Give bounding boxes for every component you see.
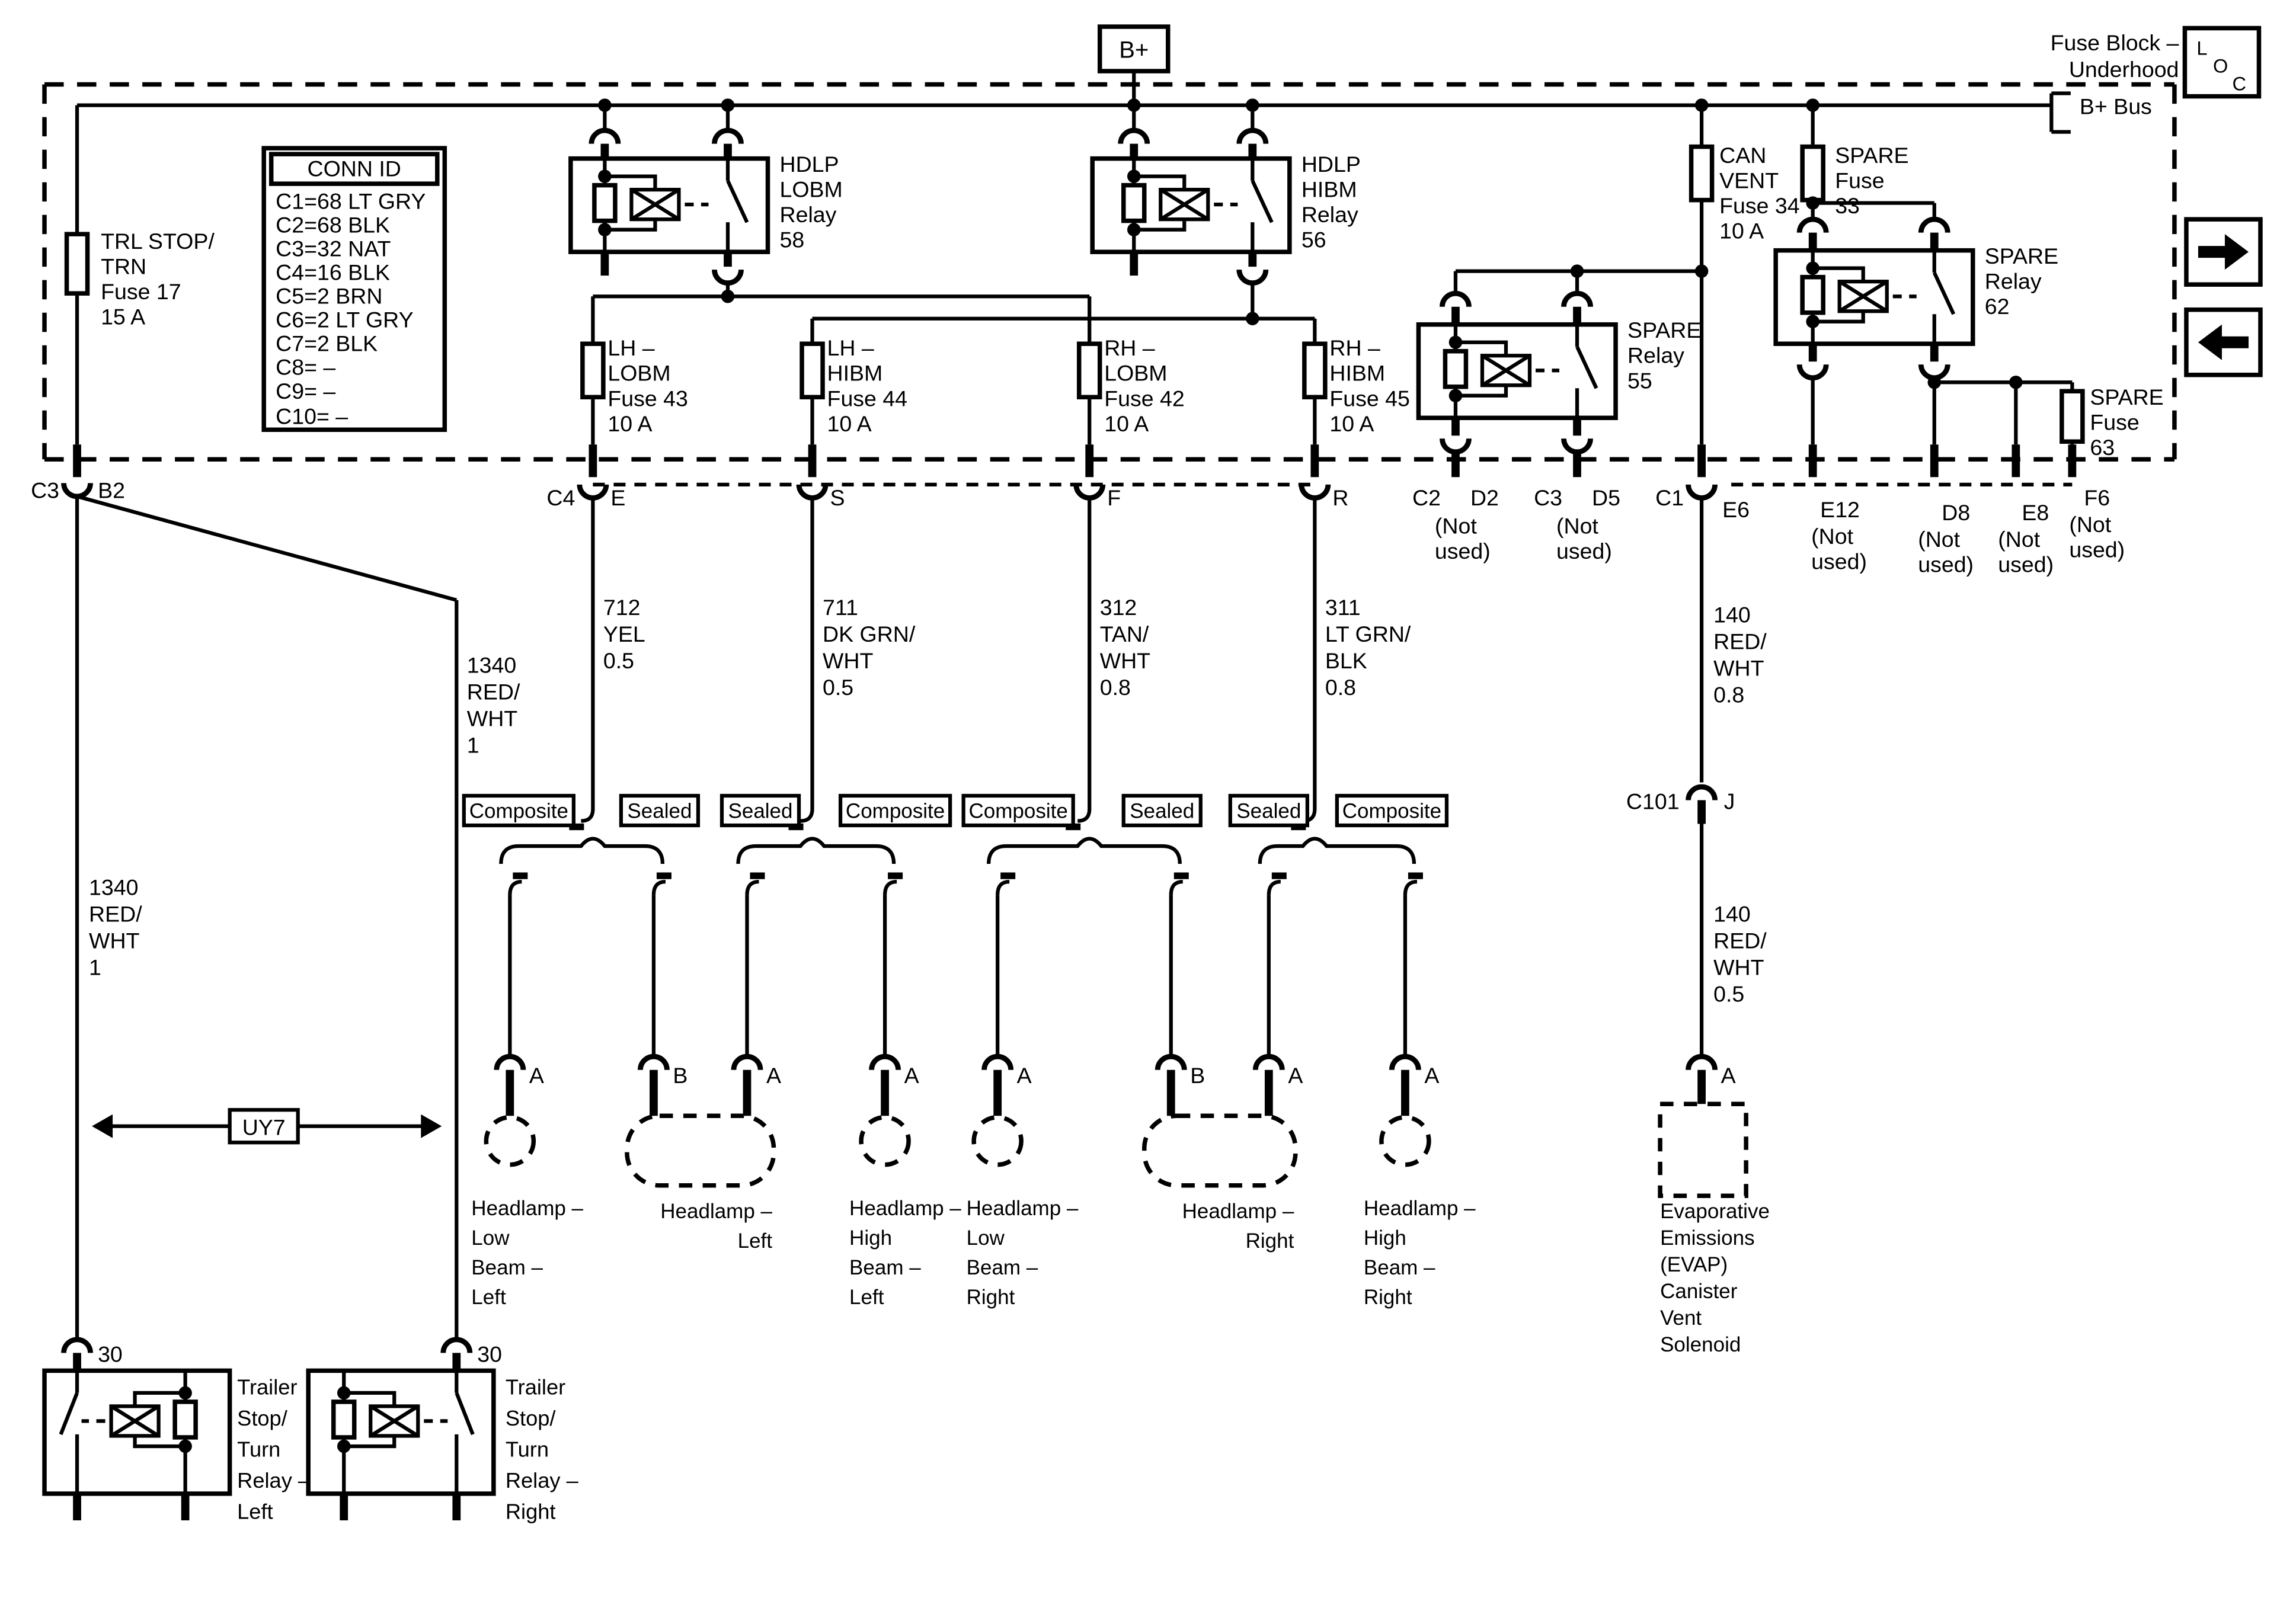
fuse33-label: Fuse	[1835, 168, 1884, 193]
wire-140b-label: 0.5	[1713, 982, 1744, 1007]
terminal-c1: C1	[1655, 485, 1684, 510]
relay56-label: HDLP	[1302, 152, 1361, 177]
wire-1340-left-label: 1340	[89, 875, 138, 900]
fuse63-label: Fuse	[2090, 409, 2139, 434]
fuse44-label: LH –	[827, 335, 874, 360]
splice-sealed: Sealed	[1236, 800, 1301, 823]
trailer-relay-left: 30 Trailer Stop/ Turn Relay – Left	[44, 1340, 311, 1524]
fuse17-label: TRN	[101, 254, 146, 279]
fuse45-label: 10 A	[1329, 411, 1374, 436]
wire-1340-right-label: 1340	[467, 652, 516, 677]
conn-id-row: C7=2 BLK	[276, 331, 378, 356]
evap-label: Vent	[1660, 1306, 1702, 1330]
terminal-a: A	[1288, 1063, 1303, 1088]
loc-letter: O	[2213, 56, 2228, 77]
lamp-left-label: Headlamp –	[660, 1200, 772, 1223]
not-used: (Not	[1918, 527, 1960, 552]
fuse34-label: Fuse 34	[1719, 193, 1799, 218]
fuse44-label: Fuse 44	[827, 386, 908, 411]
trl-stop-trn-fuse: TRL STOP/ TRN Fuse 17 15 A C3 B2	[31, 105, 215, 503]
wire-711-label: 711	[823, 595, 858, 620]
fuse33-label: SPARE	[1835, 143, 1908, 168]
fuse43-label: 10 A	[607, 411, 652, 436]
relay62-label: 62	[1985, 294, 2010, 319]
wiring-diagram-canvas: Fuse Block – Underhood L O C B+ B+ Bus C…	[0, 0, 2296, 1611]
terminal-b: B	[673, 1063, 687, 1088]
terminal-a: A	[904, 1063, 919, 1088]
terminal-c3: C3	[31, 478, 59, 502]
lamp-low-right-label: Low	[967, 1226, 1005, 1250]
fuse34-label: VENT	[1719, 168, 1779, 193]
terminal-c2: C2	[1412, 485, 1441, 510]
conn-id-row: C3=32 NAT	[276, 236, 391, 261]
headlamp-fuses: LH – LOBM Fuse 43 10 A LH – HIBM Fuse 44…	[583, 290, 1410, 444]
fuse17-label: TRL STOP/	[101, 229, 215, 254]
fuse-block-label: Underhood	[2069, 57, 2179, 82]
wire-711-label: WHT	[823, 648, 873, 673]
lamp-high-right-label: Right	[1364, 1286, 1412, 1309]
wire-311-label: BLK	[1325, 648, 1367, 673]
arrow-right-icon	[2198, 234, 2249, 270]
terminal-e12: E12	[1820, 497, 1860, 522]
relay55-label: SPARE	[1627, 318, 1701, 342]
title-block: Fuse Block – Underhood L O C	[2051, 28, 2260, 375]
fuse43-label: LOBM	[607, 361, 670, 386]
hdlp-lobm-relay-58: HDLP LOBM Relay 58	[571, 105, 843, 297]
trailer-left-label: Turn	[237, 1437, 280, 1461]
not-used: used)	[1811, 549, 1867, 574]
fuse42-label: Fuse 42	[1104, 386, 1185, 411]
conn-id-row: C8= –	[276, 355, 335, 380]
relay62-label: SPARE	[1985, 244, 2058, 268]
splice-composite: Composite	[469, 800, 568, 823]
lamp-low-beam-left	[486, 1117, 533, 1165]
terminal-b2: B2	[98, 478, 125, 502]
wire-311-label: 311	[1325, 595, 1361, 620]
lamp-right-label: Headlamp –	[1182, 1200, 1294, 1223]
wire-1340-left-label: 1	[89, 955, 101, 980]
terminal-a: A	[1424, 1063, 1439, 1088]
lamp-high-left-label: Beam –	[849, 1256, 921, 1279]
terminal-c3b: C3	[1534, 485, 1562, 510]
splice-sealed: Sealed	[1130, 800, 1194, 823]
not-used: (Not	[1998, 527, 2040, 552]
wire-1340-left-label: WHT	[89, 928, 139, 953]
fuse42-label: RH –	[1104, 335, 1155, 360]
fuse-block-label: Fuse Block –	[2051, 30, 2179, 55]
terminal-s: S	[830, 485, 845, 510]
terminal-d8: D8	[1942, 500, 1970, 525]
headlamps: A B A A A B A A Headlamp – Low Beam – Le…	[471, 1056, 1476, 1309]
connector-arc	[64, 483, 91, 497]
not-used: used)	[2069, 537, 2125, 562]
bplus-bus: B+ B+ Bus	[77, 27, 2152, 132]
arrow-left-icon	[2198, 325, 2249, 360]
conn-id-row: C1=68 LT GRY	[276, 189, 426, 214]
terminal-a: A	[1017, 1063, 1032, 1088]
evap-label: Emissions	[1660, 1226, 1754, 1250]
loc-letter: C	[2232, 73, 2246, 95]
wire-140a-label: WHT	[1713, 655, 1764, 680]
bplus-label: B+	[1119, 37, 1149, 63]
wire-312-label: 0.8	[1100, 675, 1131, 700]
lamp-left	[627, 1116, 774, 1186]
terminal-30: 30	[477, 1341, 502, 1366]
spare-relay-55: SPARE Relay 55 C2 D2 (Not used) C3 D5 (N…	[1412, 264, 1708, 563]
wire-1340-right-label: RED/	[467, 679, 520, 704]
terminal-f6: F6	[2084, 485, 2110, 510]
conn-id-row: C5=2 BRN	[276, 284, 382, 309]
terminal-e: E	[610, 485, 625, 510]
lamp-high-beam-right	[1382, 1117, 1429, 1165]
trailer-left-label: Relay –	[237, 1468, 311, 1493]
evap-label: (EVAP)	[1660, 1253, 1728, 1276]
trailer-right-label: Right	[506, 1499, 556, 1523]
fuse34-label: 10 A	[1719, 219, 1764, 244]
wire-140b-label: 140	[1713, 902, 1751, 927]
conn-id-table: CONN ID C1=68 LT GRY C2=68 BLK C3=32 NAT…	[264, 148, 445, 430]
wire-1340-right-label: 1	[467, 732, 479, 757]
terminal-e8: E8	[2022, 500, 2049, 525]
terminal-a: A	[529, 1063, 544, 1088]
trailer-left-label: Left	[237, 1499, 273, 1523]
lamp-left-label: Left	[738, 1229, 773, 1253]
fuse43-label: LH –	[607, 335, 654, 360]
relay55-label: 55	[1627, 368, 1652, 393]
lamp-high-right-label: High	[1364, 1226, 1406, 1250]
evap-label: Solenoid	[1660, 1333, 1741, 1356]
splice-composite: Composite	[846, 800, 945, 823]
evap-label: Canister	[1660, 1280, 1738, 1303]
terminal-a: A	[766, 1063, 781, 1088]
wire-312-label: WHT	[1100, 648, 1150, 673]
wire-311-label: LT GRN/	[1325, 622, 1411, 646]
bplus-bus-label: B+ Bus	[2080, 94, 2152, 119]
splice-sealed: Sealed	[627, 800, 692, 823]
wire-312-label: TAN/	[1100, 622, 1149, 646]
fuse33-label: 33	[1835, 193, 1860, 218]
conn-id-row: C9= –	[276, 379, 335, 403]
headlamp-feed-wires: 712 YEL 0.5 711 DK GRN/ WHT 0.5 312 TAN/…	[593, 498, 1411, 794]
not-used: (Not	[1556, 513, 1598, 538]
splice-sealed: Sealed	[728, 800, 793, 823]
wire-311-label: 0.8	[1325, 675, 1356, 700]
wire-140a-label: 0.8	[1713, 682, 1744, 707]
splice-row: Composite Sealed Sealed Composite Compos…	[464, 795, 1447, 1057]
lamp-high-right-label: Headlamp –	[1364, 1197, 1476, 1220]
wire-1340-left-label: RED/	[89, 902, 142, 927]
terminal-d2: D2	[1470, 485, 1499, 510]
wire-712-label: 712	[603, 595, 641, 620]
not-used: used)	[1998, 552, 2054, 576]
trailer-right-label: Stop/	[506, 1406, 557, 1430]
wire-140a-label: 140	[1713, 602, 1751, 627]
lamp-low-left-label: Left	[471, 1286, 506, 1309]
uy7-arrow-left-icon	[92, 1114, 113, 1138]
splice-composite: Composite	[1342, 800, 1441, 823]
uy7-option-label: UY7	[242, 1115, 286, 1140]
wire-712-label: 0.5	[603, 648, 634, 673]
lamp-low-left-label: Beam –	[471, 1256, 543, 1279]
conn-id-header: CONN ID	[308, 156, 401, 181]
fuse63-label: 63	[2090, 435, 2115, 460]
trailer-right-label: Relay –	[506, 1468, 579, 1493]
fuse44-label: 10 A	[827, 411, 872, 436]
terminal-d5: D5	[1592, 485, 1620, 510]
not-used: used)	[1435, 539, 1491, 563]
uy7-arrow-right-icon	[421, 1114, 442, 1138]
not-used: used)	[1918, 552, 1974, 576]
wire-711-label: 0.5	[823, 675, 853, 700]
lamp-high-right-label: Beam –	[1364, 1256, 1435, 1279]
wire-712-label: YEL	[603, 622, 645, 646]
relay56-label: 56	[1302, 228, 1326, 252]
terminal-c4: C4	[546, 485, 575, 510]
lamp-low-right-label: Right	[967, 1286, 1015, 1309]
conn-id-row: C2=68 BLK	[276, 213, 390, 238]
relay58-label: HDLP	[780, 152, 839, 177]
conn-id-row: C6=2 LT GRY	[276, 308, 413, 332]
relay56-label: HIBM	[1302, 177, 1357, 202]
fuse42-label: 10 A	[1104, 411, 1149, 436]
lamp-right-label: Right	[1246, 1229, 1294, 1253]
not-used: used)	[1556, 539, 1612, 563]
lamp-high-left-label: Left	[849, 1286, 884, 1309]
splice-composite: Composite	[969, 800, 1068, 823]
trailer-right-label: Trailer	[506, 1375, 565, 1399]
fuse45-label: Fuse 45	[1329, 386, 1410, 411]
trailer-feed: 1340 RED/ WHT 1 1340 RED/ WHT 1 UY7	[77, 497, 520, 1338]
fuse63-label: SPARE	[2090, 385, 2163, 409]
evap-solenoid-box	[1660, 1104, 1746, 1196]
trailer-relay-right: 30 Trailer Stop/ Turn Relay – Right	[308, 1340, 578, 1524]
fuse45-label: HIBM	[1329, 361, 1385, 386]
terminal-f: F	[1107, 485, 1121, 510]
lamp-right	[1144, 1116, 1296, 1186]
not-used: (Not	[1811, 524, 1853, 549]
fuse17-label: Fuse 17	[101, 279, 181, 304]
conn-id-row: C10= –	[276, 403, 348, 428]
wire-140a-label: RED/	[1713, 629, 1767, 654]
lamp-high-left-label: Headlamp –	[849, 1197, 961, 1220]
fuse17-label: 15 A	[101, 305, 145, 329]
terminal-30: 30	[98, 1341, 123, 1366]
trailer-left-label: Trailer	[237, 1375, 297, 1399]
trailer-right-label: Turn	[506, 1437, 549, 1461]
relay56-label: Relay	[1302, 202, 1358, 227]
wire-1340-right-label: WHT	[467, 706, 517, 731]
loc-letter: L	[2196, 38, 2207, 59]
trailer-left-label: Stop/	[237, 1406, 288, 1430]
fuse43-label: Fuse 43	[607, 386, 688, 411]
fuse42-label: LOBM	[1104, 361, 1167, 386]
terminal-b: B	[1190, 1063, 1205, 1088]
fuse45-label: RH –	[1329, 335, 1380, 360]
lamp-low-left-label: Low	[471, 1226, 510, 1250]
not-used: (Not	[1435, 513, 1477, 538]
terminal-a: A	[1721, 1063, 1736, 1088]
lamp-low-right-label: Beam –	[967, 1256, 1038, 1279]
relay62-label: Relay	[1985, 269, 2042, 294]
relay55-label: Relay	[1627, 343, 1684, 368]
terminal-e6: E6	[1722, 497, 1750, 522]
relay58-label: Relay	[780, 202, 837, 227]
fuse44-label: HIBM	[827, 361, 883, 386]
lamp-low-right-label: Headlamp –	[967, 1197, 1079, 1220]
c4-connector-row: C4 E S F R	[546, 444, 1348, 510]
terminal-j: J	[1724, 789, 1735, 814]
terminal-r: R	[1332, 485, 1348, 510]
wire-711-label: DK GRN/	[823, 622, 916, 646]
wire-140b-label: WHT	[1713, 955, 1764, 980]
lamp-high-left-label: High	[849, 1226, 892, 1250]
wire-140b-label: RED/	[1713, 928, 1767, 953]
wire-312-label: 312	[1100, 595, 1137, 620]
conn-id-row: C4=16 BLK	[276, 260, 390, 285]
relay58-label: LOBM	[780, 177, 843, 202]
spare-relay-62: SPARE Fuse 33 SPARE Relay 62 SPARE Fuse …	[1731, 105, 2164, 577]
fuse34-label: CAN	[1719, 143, 1766, 168]
connector-c101: C101	[1626, 789, 1680, 814]
hdlp-hibm-relay-56: HDLP HIBM Relay 56	[1092, 105, 1361, 319]
lamp-high-beam-left	[861, 1117, 909, 1165]
relay58-label: 58	[780, 228, 805, 252]
lamp-low-left-label: Headlamp –	[471, 1197, 583, 1220]
evap-label: Evaporative	[1660, 1200, 1770, 1223]
not-used: (Not	[2069, 512, 2111, 537]
lamp-low-beam-right	[974, 1117, 1021, 1165]
